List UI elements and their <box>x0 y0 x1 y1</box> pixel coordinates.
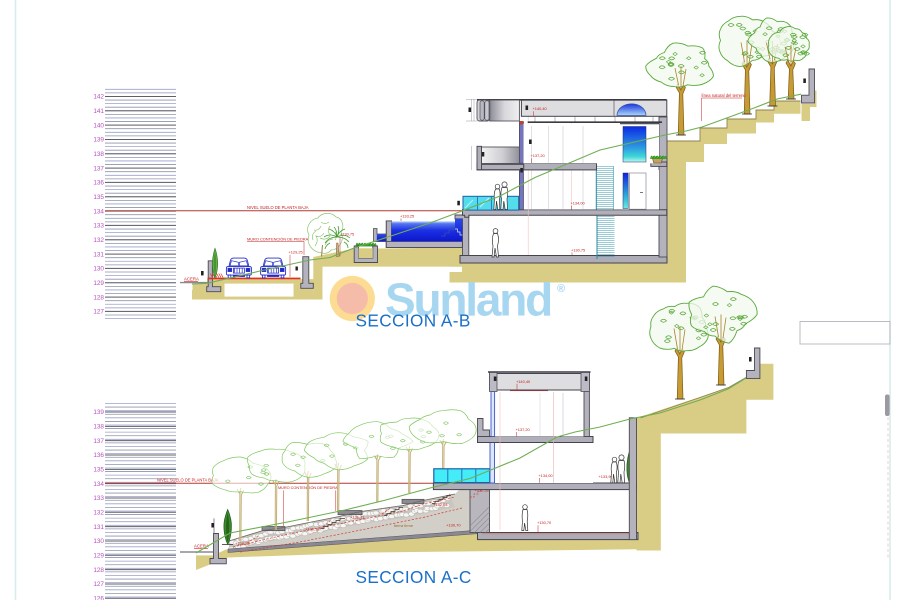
svg-text:139: 139 <box>93 409 104 416</box>
svg-text:127: 127 <box>93 581 104 588</box>
svg-text:MURO CONTENCIÓN DE PIEDRA: MURO CONTENCIÓN DE PIEDRA <box>247 236 309 241</box>
svg-text:137: 137 <box>93 438 104 445</box>
svg-text:138: 138 <box>93 424 104 431</box>
svg-text:136: 136 <box>93 180 104 187</box>
svg-text:+129,25: +129,25 <box>289 250 303 255</box>
svg-text:+130,70: +130,70 <box>537 520 552 525</box>
svg-text:+137,20: +137,20 <box>516 427 531 432</box>
svg-text:tierra firme: tierra firme <box>394 523 414 528</box>
svg-text:127: 127 <box>93 309 104 316</box>
svg-text:130: 130 <box>93 538 104 545</box>
svg-text:+130,18: +130,18 <box>305 527 320 532</box>
svg-text:131: 131 <box>93 524 104 531</box>
svg-text:126: 126 <box>93 596 104 600</box>
svg-text:+133,25: +133,25 <box>400 213 414 218</box>
svg-text:NIVEL SUELO DE PLANTA BAJA: NIVEL SUELO DE PLANTA BAJA <box>157 478 219 483</box>
svg-text:SECCION A-C: SECCION A-C <box>356 567 472 587</box>
svg-text:133: 133 <box>93 223 104 230</box>
svg-text:128: 128 <box>93 567 104 574</box>
svg-text:139: 139 <box>93 137 104 144</box>
svg-text:+134,00: +134,00 <box>538 473 553 478</box>
svg-text:+130,75: +130,75 <box>340 231 354 236</box>
svg-text:SECCION A-B: SECCION A-B <box>356 310 471 330</box>
svg-text:132: 132 <box>93 510 104 517</box>
svg-text:NIVEL SUELO DE PLANTA BAJA: NIVEL SUELO DE PLANTA BAJA <box>247 205 309 210</box>
svg-text:+128,26: +128,26 <box>235 541 250 546</box>
svg-text:129: 129 <box>93 280 104 287</box>
svg-text:141: 141 <box>93 108 104 115</box>
svg-text:130: 130 <box>93 266 104 273</box>
svg-text:+137,20: +137,20 <box>531 153 546 158</box>
svg-text:ACERA: ACERA <box>184 277 199 282</box>
svg-text:138: 138 <box>93 151 104 158</box>
svg-text:140: 140 <box>93 122 104 129</box>
svg-text:+140,40: +140,40 <box>533 106 548 111</box>
svg-text:+130,75: +130,75 <box>571 247 585 252</box>
svg-text:135: 135 <box>93 194 104 201</box>
svg-text:+131,11: +131,11 <box>350 515 365 520</box>
svg-text:131: 131 <box>93 251 104 258</box>
svg-text:128: 128 <box>93 294 104 301</box>
svg-text:142: 142 <box>93 94 104 101</box>
svg-text:133: 133 <box>93 495 104 502</box>
svg-text:®: ® <box>557 283 565 295</box>
svg-text:135: 135 <box>93 467 104 474</box>
svg-text:+132,04: +132,04 <box>433 502 448 507</box>
svg-text:+140,40: +140,40 <box>516 379 531 384</box>
svg-text:+130,70: +130,70 <box>446 522 461 527</box>
svg-text:+134,00: +134,00 <box>571 201 586 206</box>
svg-text:134: 134 <box>93 208 104 215</box>
svg-text:134: 134 <box>93 481 104 488</box>
svg-text:129: 129 <box>93 553 104 560</box>
svg-text:132: 132 <box>93 237 104 244</box>
svg-text:136: 136 <box>93 452 104 459</box>
svg-text:línea natural del terreno: línea natural del terreno <box>702 93 747 98</box>
svg-text:137: 137 <box>93 165 104 172</box>
svg-text:MURO CONTENCIÓN DE PIEDRA: MURO CONTENCIÓN DE PIEDRA <box>278 485 338 490</box>
